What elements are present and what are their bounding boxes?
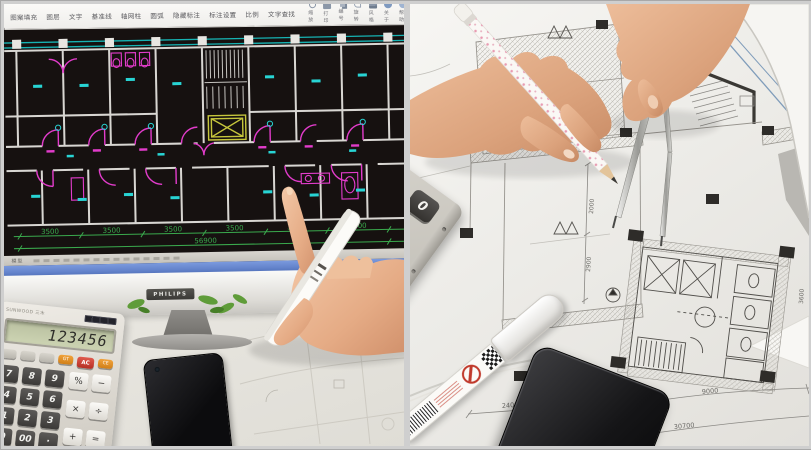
index-finger bbox=[282, 187, 317, 275]
calculator-key: 0 bbox=[410, 188, 442, 225]
svg-text:2000: 2000 bbox=[588, 198, 596, 214]
svg-text:30700: 30700 bbox=[673, 421, 694, 431]
svg-text:2900: 2900 bbox=[585, 256, 593, 272]
svg-text:9000: 9000 bbox=[701, 387, 718, 396]
pointing-hand bbox=[4, 4, 404, 446]
svg-text:3600: 3600 bbox=[798, 288, 806, 304]
right-photo-blueprint-scene: 2000 2900 3600 bbox=[410, 4, 809, 446]
composite-photo: 3500 3500 3500 3500 3500 7000 56900 模型 图… bbox=[0, 0, 811, 450]
left-photo-cad-monitor-scene: 3500 3500 3500 3500 3500 7000 56900 模型 图… bbox=[4, 4, 404, 446]
no-sign-logo-icon bbox=[458, 361, 485, 388]
